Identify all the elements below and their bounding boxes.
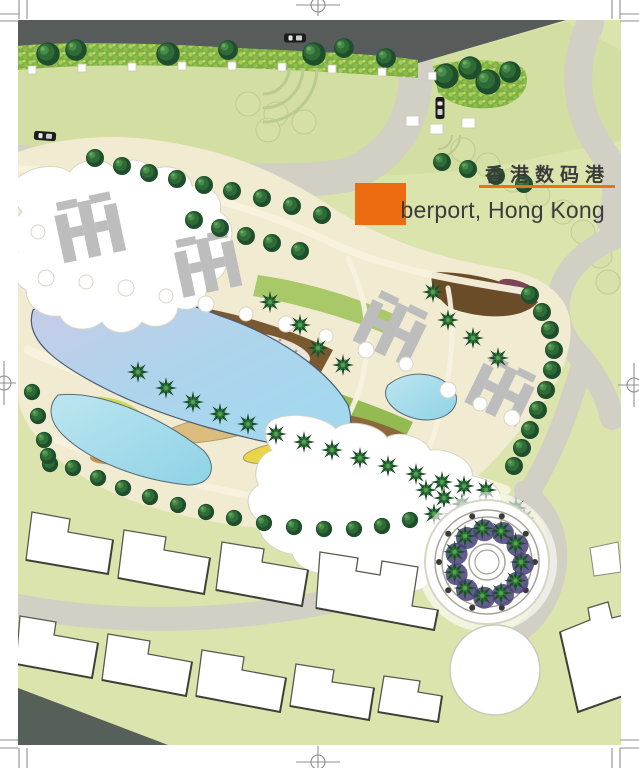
- site-plan-drawing: [18, 20, 621, 745]
- title-underline-rule: [479, 185, 615, 188]
- title-accent-letters: Cy: [372, 197, 401, 223]
- project-title-english: Cyberport, Hong Kong: [372, 197, 605, 224]
- car: [436, 97, 445, 119]
- master-plan-page: 香港数码港 Cyberport, Hong Kong: [0, 0, 639, 768]
- small-structure: [590, 542, 621, 576]
- round-plaza: [450, 625, 540, 715]
- car: [284, 34, 306, 43]
- project-title-chinese: 香港数码港: [485, 160, 610, 187]
- title-rest: berport, Hong Kong: [401, 197, 605, 223]
